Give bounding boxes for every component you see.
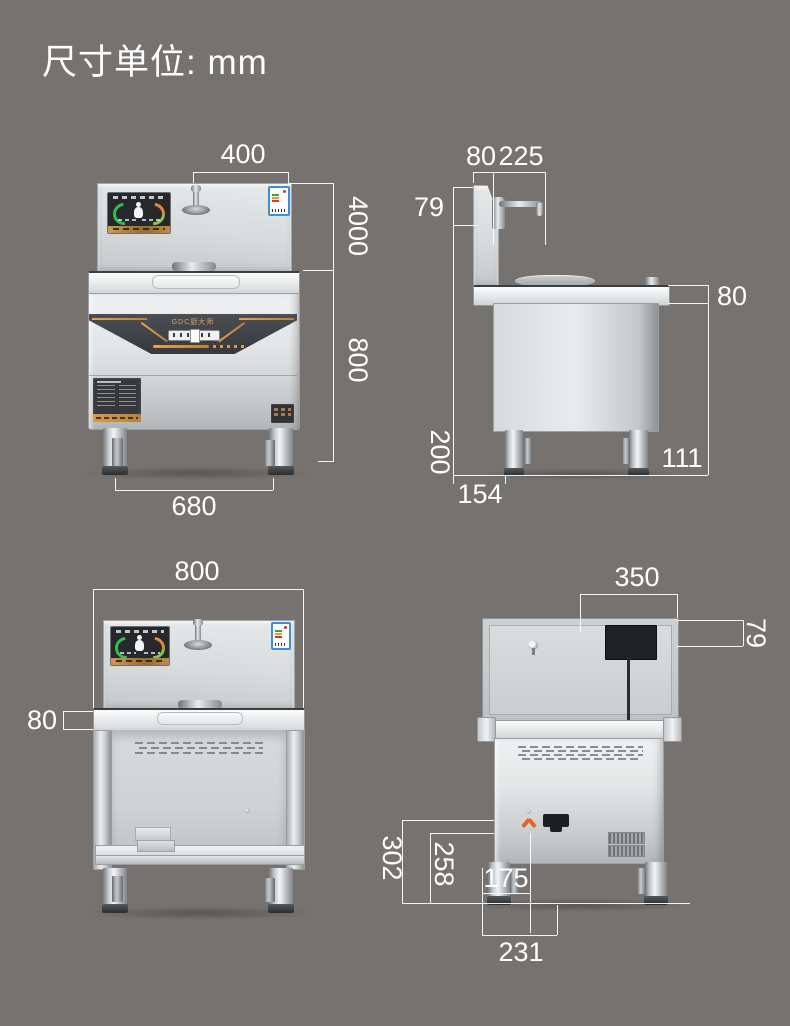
- vent-grille: [608, 832, 645, 844]
- dim-line: [288, 172, 289, 183]
- leg-rear: [112, 876, 123, 902]
- chef-figure-head: [137, 635, 142, 640]
- dim-line: [303, 589, 304, 708]
- leg: [505, 430, 523, 474]
- stand-shelf: [95, 845, 305, 863]
- dim-line: [708, 285, 709, 475]
- dim-line: [63, 729, 93, 730]
- screen-readout: [144, 652, 160, 654]
- dim-line: [530, 833, 531, 933]
- dim-label-154: 154: [445, 480, 515, 508]
- dim-line: [93, 589, 94, 708]
- dim-line: [402, 820, 494, 821]
- countertop-side: [473, 285, 670, 306]
- screen-footer-strip: [108, 226, 170, 233]
- dim-line: [580, 594, 581, 632]
- faucet-base: [182, 205, 210, 215]
- handle-recess: [152, 275, 240, 289]
- dim-line: [453, 475, 708, 476]
- dim-line: [677, 594, 678, 618]
- dim-line: [115, 490, 273, 491]
- power-cable: [627, 658, 630, 734]
- faucet-arm: [499, 201, 543, 207]
- dim-label-80: 80: [461, 142, 501, 170]
- handle-recess: [157, 712, 243, 725]
- leg-foot: [504, 468, 524, 476]
- dim-line: [545, 172, 546, 245]
- countertop-end-cap: [663, 717, 682, 742]
- energy-label: [271, 622, 291, 650]
- screw: [526, 809, 531, 814]
- leg-foot: [268, 466, 294, 475]
- mount-keyhole-slot: [532, 648, 535, 655]
- display-screen: [110, 626, 170, 666]
- leg: [269, 428, 293, 472]
- vent-slots: [522, 758, 639, 760]
- leg-inner: [510, 868, 519, 894]
- spec-label-warning-strip: [93, 414, 141, 422]
- faucet: [195, 622, 201, 644]
- dim-label-800: 800: [157, 557, 237, 585]
- stand-shelf-edge: [95, 855, 305, 865]
- faucet-head: [191, 185, 201, 192]
- rating-plate: [271, 404, 294, 423]
- energy-label-bars: [272, 194, 279, 196]
- backsplash-rear-inner: [489, 625, 672, 715]
- leg-rear: [264, 878, 275, 902]
- dim-line: [318, 461, 333, 462]
- dim-label-80: 80: [22, 706, 62, 734]
- floor-shadow: [80, 466, 310, 480]
- leg: [103, 868, 127, 910]
- junction-box: [605, 625, 657, 660]
- dim-label-302: 302: [378, 826, 406, 890]
- spec-label-text: [119, 385, 136, 409]
- chef-figure-head: [136, 202, 141, 207]
- faucet-base: [184, 640, 212, 650]
- energy-label-dot: [283, 190, 286, 193]
- lid-handle: [178, 700, 222, 709]
- dim-line: [430, 833, 494, 834]
- spec-label: [93, 378, 141, 422]
- vent-slots: [522, 750, 643, 752]
- leg-foot: [628, 468, 649, 476]
- dim-line: [482, 893, 530, 894]
- leg: [488, 862, 510, 902]
- dim-line: [193, 172, 194, 183]
- dim-line: [453, 475, 454, 484]
- accent-diag-right: [218, 322, 245, 342]
- gauge-arc-left: [109, 199, 140, 230]
- leg-foot: [268, 904, 294, 913]
- floor-shadow: [85, 906, 315, 920]
- dim-label-4000: 4000: [344, 186, 372, 266]
- leg-inner: [622, 438, 630, 464]
- view-front: GDC厨大师 400 4000: [0, 0, 790, 1026]
- dim-label-225: 225: [496, 142, 546, 170]
- dim-label-80-counter: 80: [712, 282, 752, 310]
- dim-line: [453, 187, 454, 475]
- shelf-items: [135, 827, 171, 841]
- dim-line: [482, 935, 557, 936]
- screen-header-text: [116, 630, 165, 633]
- dim-label-400: 400: [203, 140, 283, 168]
- chef-figure-icon: [134, 207, 143, 218]
- leg: [629, 430, 648, 474]
- view-rear: 350 79 302 258 175 231: [0, 0, 790, 1026]
- leg-foot: [644, 896, 668, 905]
- vent-slots: [518, 754, 643, 756]
- stand-pillar-right: [286, 730, 305, 870]
- body-seam: [89, 375, 297, 376]
- dim-line: [668, 285, 708, 286]
- countertop-rear-tab: [645, 277, 659, 285]
- screw: [245, 808, 250, 813]
- dim-line: [493, 172, 494, 245]
- slider-ticks: [173, 333, 211, 337]
- dim-line: [333, 183, 334, 462]
- dim-line: [402, 820, 403, 903]
- brand-logo-text: GDC厨大师: [89, 319, 297, 327]
- leg-foot: [102, 466, 128, 475]
- accent-diag-left: [141, 322, 168, 342]
- accent-line-left: [92, 318, 147, 320]
- leg-foot: [487, 896, 511, 905]
- product-dimension-sheet: 尺寸单位: mm: [0, 0, 790, 1026]
- countertop-end-cap: [477, 717, 496, 742]
- dim-line: [557, 905, 558, 935]
- dim-line: [473, 172, 474, 183]
- dim-line: [677, 646, 743, 647]
- floor-shadow: [480, 468, 680, 480]
- stand-pillar-left: [93, 730, 112, 870]
- wok-pan: [515, 275, 595, 287]
- view-front-stand: 800 80: [0, 0, 790, 1026]
- view-side: 80 225 79 200 154 80 111: [0, 0, 790, 1026]
- stand-back-panel: [110, 730, 286, 860]
- dim-label-258: 258: [430, 832, 458, 896]
- gauge-arc-left: [111, 633, 142, 664]
- energy-label-dot: [284, 626, 287, 629]
- dim-line: [473, 172, 545, 173]
- leg-inner: [637, 868, 646, 894]
- energy-label-barcode: [275, 643, 287, 646]
- brand-mark-orange: [527, 818, 536, 828]
- dim-line: [115, 478, 116, 490]
- energy-label: [268, 186, 290, 216]
- spec-label-title: [97, 381, 121, 383]
- power-connector-notch: [550, 826, 562, 832]
- dim-line: [193, 172, 288, 173]
- backsplash-panel: [103, 620, 295, 710]
- display-screen: [107, 192, 171, 234]
- dim-label-175: 175: [474, 864, 538, 892]
- dim-line: [482, 868, 483, 935]
- dim-label-79: 79: [408, 193, 450, 221]
- unit-title: 尺寸单位: mm: [42, 34, 268, 85]
- dim-line: [303, 270, 333, 271]
- screen-header-text: [113, 196, 165, 199]
- dim-label-680: 680: [154, 492, 234, 520]
- shelf-items: [137, 840, 175, 852]
- progress-bar: [153, 345, 209, 348]
- dim-line: [288, 183, 333, 184]
- vent-slots: [135, 742, 263, 744]
- leg: [269, 868, 293, 910]
- dim-line: [63, 711, 64, 729]
- screen-readout: [120, 652, 136, 654]
- screen-readout: [142, 219, 160, 221]
- slider-control: [168, 330, 220, 341]
- faucet-head: [193, 619, 203, 626]
- spec-label-text: [97, 385, 115, 409]
- leg-foot: [102, 904, 128, 913]
- leg: [645, 862, 667, 902]
- brand-mark-orange: [521, 818, 530, 828]
- progress-dots: [213, 345, 247, 348]
- dim-label-200: 200: [426, 420, 454, 484]
- dim-line: [453, 225, 478, 226]
- dim-label-111: 111: [650, 444, 714, 472]
- power-connector: [543, 814, 569, 827]
- accent-line-right: [239, 318, 294, 320]
- leg-rear: [264, 440, 275, 466]
- leg-inner: [524, 438, 532, 464]
- faucet: [193, 188, 199, 210]
- vent-grille: [608, 845, 645, 857]
- machine-body-rear: [494, 738, 664, 864]
- leg: [103, 428, 127, 472]
- control-panel-band: GDC厨大师: [89, 314, 297, 354]
- energy-label-bars: [275, 630, 282, 632]
- lid-handle: [172, 262, 216, 271]
- dim-label-231: 231: [489, 938, 553, 966]
- dim-label-350: 350: [597, 563, 677, 591]
- dim-line: [93, 589, 303, 590]
- dim-line: [668, 303, 708, 304]
- dim-line: [677, 620, 743, 621]
- screen-readout: [118, 219, 136, 221]
- dim-line: [63, 711, 93, 712]
- vent-slots: [518, 746, 643, 748]
- faucet-spout: [536, 203, 543, 216]
- backsplash-panel: [97, 183, 292, 273]
- floor-shadow: [475, 898, 685, 912]
- leg-rear: [112, 438, 123, 466]
- slider-knob: [190, 329, 200, 343]
- dim-line: [453, 187, 473, 188]
- machine-body-side: [493, 303, 659, 432]
- backsplash-rear: [482, 618, 679, 722]
- countertop-band: [88, 271, 300, 296]
- countertop-band: [93, 708, 305, 733]
- gauge-arc-right: [139, 199, 170, 230]
- dim-line: [580, 594, 677, 595]
- mount-keyhole: [528, 640, 538, 650]
- backsplash-side: [473, 185, 499, 287]
- dim-line: [430, 833, 431, 903]
- gauge-arc-right: [139, 633, 170, 664]
- dim-line: [505, 475, 506, 484]
- countertop-rear: [480, 720, 679, 740]
- dim-label-79: 79: [742, 611, 770, 655]
- energy-label-barcode: [272, 209, 286, 212]
- faucet-body-side: [492, 197, 505, 229]
- dim-line: [273, 478, 274, 490]
- screen-footer-strip: [111, 658, 169, 665]
- dim-label-800: 800: [344, 330, 372, 390]
- chef-figure-icon: [135, 640, 144, 651]
- vent-slots: [139, 747, 263, 749]
- dim-line: [402, 903, 690, 904]
- vent-slots: [135, 752, 263, 754]
- dim-line: [743, 620, 744, 646]
- machine-body: [88, 293, 300, 430]
